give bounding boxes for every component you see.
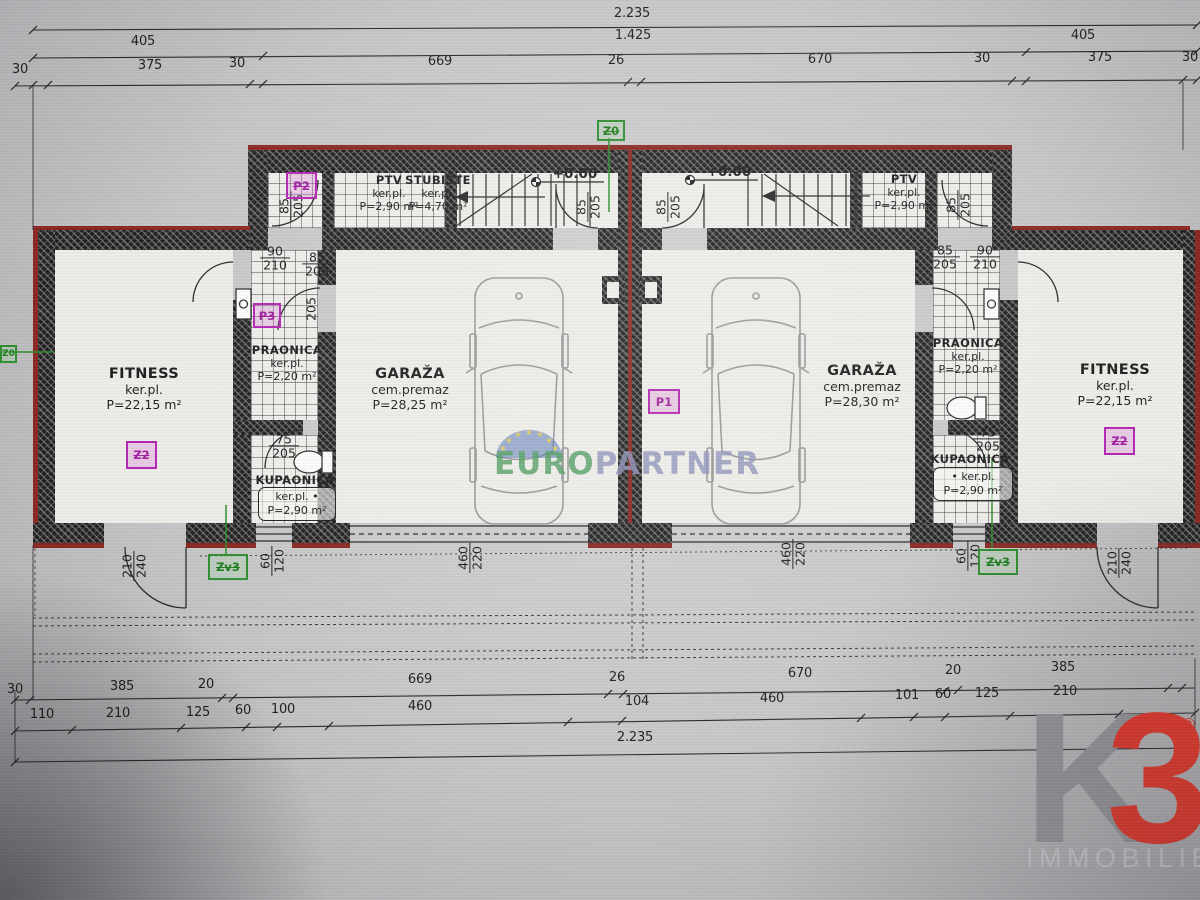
- svg-text:★: ★: [525, 428, 532, 437]
- room-label-garage-left: GARAŽA cem.premaz P=28,25 m²: [371, 366, 449, 412]
- dim-top-row2: 1.425: [615, 28, 651, 43]
- svg-text:★: ★: [536, 430, 543, 439]
- marker-p3: P3: [253, 303, 281, 328]
- dim-bottom-row1: 26: [609, 670, 625, 685]
- dim-bottom-row2: 125: [186, 705, 210, 720]
- dim-hall-left-inner: 85205: [302, 250, 332, 277]
- dim-bottom-row2: 210: [106, 706, 130, 721]
- room-finish: ker.pl.: [1078, 378, 1153, 393]
- room-finish: ker.pl.: [107, 382, 182, 397]
- dim-bottom-row2: 100: [271, 702, 295, 717]
- dim-bath-door-left: 75205: [269, 432, 299, 459]
- marker-p1: P1: [648, 389, 680, 414]
- dim-bottom-row2: 101: [895, 688, 919, 703]
- room-name: STUBIŠTE: [405, 174, 471, 187]
- dim-garage-gate-left: 460220: [456, 543, 483, 573]
- car-left: [466, 278, 572, 524]
- dim-top-row2: 405: [1071, 28, 1095, 43]
- room-area: P=22,15 m²: [107, 397, 182, 412]
- room-name: GARAŽA: [371, 366, 449, 382]
- room-area: P=2,20 m²: [252, 370, 322, 383]
- dim-top-row3: 670: [808, 52, 832, 67]
- room-card-kupaonica-right: • ker.pl. P=2,90 m²: [933, 467, 1013, 501]
- room-finish: ker.pl.: [252, 357, 322, 370]
- dim-bottom-row2: 60: [935, 687, 951, 702]
- dim-bottom-row2: 110: [30, 707, 54, 722]
- room-label-praonica-left: PRAONICA ker.pl. P=2,20 m²: [252, 344, 322, 383]
- room-label-kupaonica-left: KUPAONICA: [256, 474, 335, 487]
- dim-bottom-row1: 385: [110, 679, 134, 694]
- logo-immobilien: IMMOBILIEN: [1026, 843, 1200, 874]
- dim-top-row3: 30: [12, 62, 28, 77]
- room-name: PRAONICA: [252, 344, 322, 357]
- dim-top-row3: 30: [229, 56, 245, 71]
- room-finish: ker.pl.: [933, 350, 1003, 363]
- watermark-euro: EURO: [494, 446, 595, 482]
- room-label-kupaonica-right: KUPAONICA: [931, 453, 1010, 466]
- dim-hall-right-outer: 90210: [970, 243, 1000, 270]
- sink-left: [236, 289, 251, 319]
- room-name: PRAONICA: [933, 337, 1003, 350]
- floorplan-photo: 2.235 405 1.425 405 30 375 30 669 26 670…: [0, 0, 1200, 900]
- dim-top-row3: 669: [428, 54, 452, 69]
- marker-z0: Z0: [597, 120, 625, 141]
- level-label-left: +0.00: [553, 166, 598, 182]
- dim-top-row3: 26: [608, 53, 624, 68]
- room-finish: cem.premaz: [371, 382, 449, 397]
- room-name: KUPAONICA: [256, 474, 335, 487]
- sink-right: [984, 289, 999, 319]
- dim-bottom-row2: 460: [760, 691, 784, 706]
- room-area: P=22,15 m²: [1078, 393, 1153, 408]
- room-label-fitness-right: FITNESS ker.pl. P=22,15 m²: [1078, 362, 1153, 408]
- toilet-left: [294, 451, 333, 473]
- room-area: P=2,90 m²: [935, 484, 1011, 498]
- room-area: P=2,90 m²: [875, 199, 934, 212]
- dim-bottom-overall: 2.235: [617, 730, 653, 745]
- room-name: PTV: [875, 173, 934, 186]
- room-area: P=4,70 m²: [405, 200, 471, 213]
- dim-bottom-row2: 125: [975, 686, 999, 701]
- dim-hall-right-inner: 85205: [930, 243, 960, 270]
- toilet-right: [947, 397, 986, 419]
- svg-text:★: ★: [514, 430, 521, 439]
- car-right: [703, 278, 809, 524]
- room-name: FITNESS: [107, 366, 182, 382]
- k3-logo: K3: [1024, 706, 1200, 851]
- room-name: KUPAONICA: [931, 453, 1010, 466]
- room-area: P=28,25 m²: [371, 397, 449, 412]
- marker-z0-edge: Z0: [0, 345, 17, 363]
- level-label-right: +0.00: [707, 164, 752, 180]
- dim-bottom-row1: 385: [1051, 660, 1075, 675]
- dim-bottom-row2: 104: [625, 694, 649, 709]
- site-dashed-lines: [33, 170, 1197, 662]
- logo-registered-icon: ®: [1183, 716, 1195, 734]
- dim-bottom-row2: 60: [235, 703, 251, 718]
- stairs-right: [748, 174, 870, 226]
- room-name: GARAŽA: [823, 363, 901, 379]
- marker-p2: P2: [286, 172, 317, 199]
- dim-bottom-row1: 20: [198, 677, 214, 692]
- marker-z2-left: Z2: [126, 441, 157, 469]
- room-finish: ker.pl.: [405, 187, 471, 200]
- dim-mid-door-right: 85205: [654, 192, 681, 222]
- room-label-stubiste: STUBIŠTE ker.pl. P=4,70 m²: [405, 174, 471, 213]
- dim-entry-door-right: 85205: [944, 190, 971, 220]
- europartner-watermark: EUROPARTNER: [494, 446, 760, 482]
- room-label-fitness-left: FITNESS ker.pl. P=22,15 m²: [107, 366, 182, 412]
- dim-top-overall: 2.235: [614, 6, 650, 21]
- marker-z2-right: Z2: [1104, 427, 1135, 455]
- dim-window-left: 60120: [258, 546, 285, 576]
- dim-top-row3: 30: [974, 51, 990, 66]
- dim-garage-gate-right: 460220: [779, 539, 806, 569]
- room-area: P=28,30 m²: [823, 394, 901, 409]
- room-finish: ker.pl. •: [260, 490, 334, 504]
- marker-zv3-right: Zv3: [978, 549, 1018, 575]
- room-finish: cem.premaz: [823, 379, 901, 394]
- room-area: P=2,90 m²: [260, 504, 334, 518]
- room-label-ptv-right: PTV ker.pl. P=2,90 m²: [875, 173, 934, 212]
- dim-entry-bottom-right: 210240: [1105, 548, 1132, 578]
- svg-text:★: ★: [505, 436, 512, 445]
- marker-zv3-left: Zv3: [208, 554, 248, 580]
- room-name: FITNESS: [1078, 362, 1153, 378]
- dim-top-row3: 375: [138, 58, 162, 73]
- dim-bottom-row1: 669: [408, 672, 432, 687]
- dim-bottom-row1: 20: [945, 663, 961, 678]
- room-finish: • ker.pl.: [935, 470, 1011, 484]
- dim-hall-left-outer: 90210: [260, 244, 290, 271]
- watermark-partner: PARTNER: [595, 446, 760, 482]
- dim-bath-door-right: 75205: [973, 425, 1003, 452]
- dim-bottom-row2: 460: [408, 699, 432, 714]
- room-finish: ker.pl.: [875, 186, 934, 199]
- room-label-garage-right: GARAŽA cem.premaz P=28,30 m²: [823, 363, 901, 409]
- dim-mid-door-left: 85205: [574, 192, 601, 222]
- dim-top-row3: 375: [1088, 50, 1112, 65]
- dim-top-row3: 30: [1182, 50, 1198, 65]
- dim-bottom-row1: 30: [7, 682, 23, 697]
- wall-openings: [256, 526, 985, 542]
- room-label-praonica-right: PRAONICA ker.pl. P=2,20 m²: [933, 337, 1003, 376]
- room-card-kupaonica-left: ker.pl. • P=2,90 m²: [258, 487, 336, 521]
- dim-entry-bottom-left: 210240: [120, 551, 147, 581]
- dim-bottom-row1: 670: [788, 666, 812, 681]
- dim-top-row2: 405: [131, 34, 155, 49]
- room-area: P=2,20 m²: [933, 363, 1003, 376]
- dim-laundry-door-left: 205: [304, 297, 319, 321]
